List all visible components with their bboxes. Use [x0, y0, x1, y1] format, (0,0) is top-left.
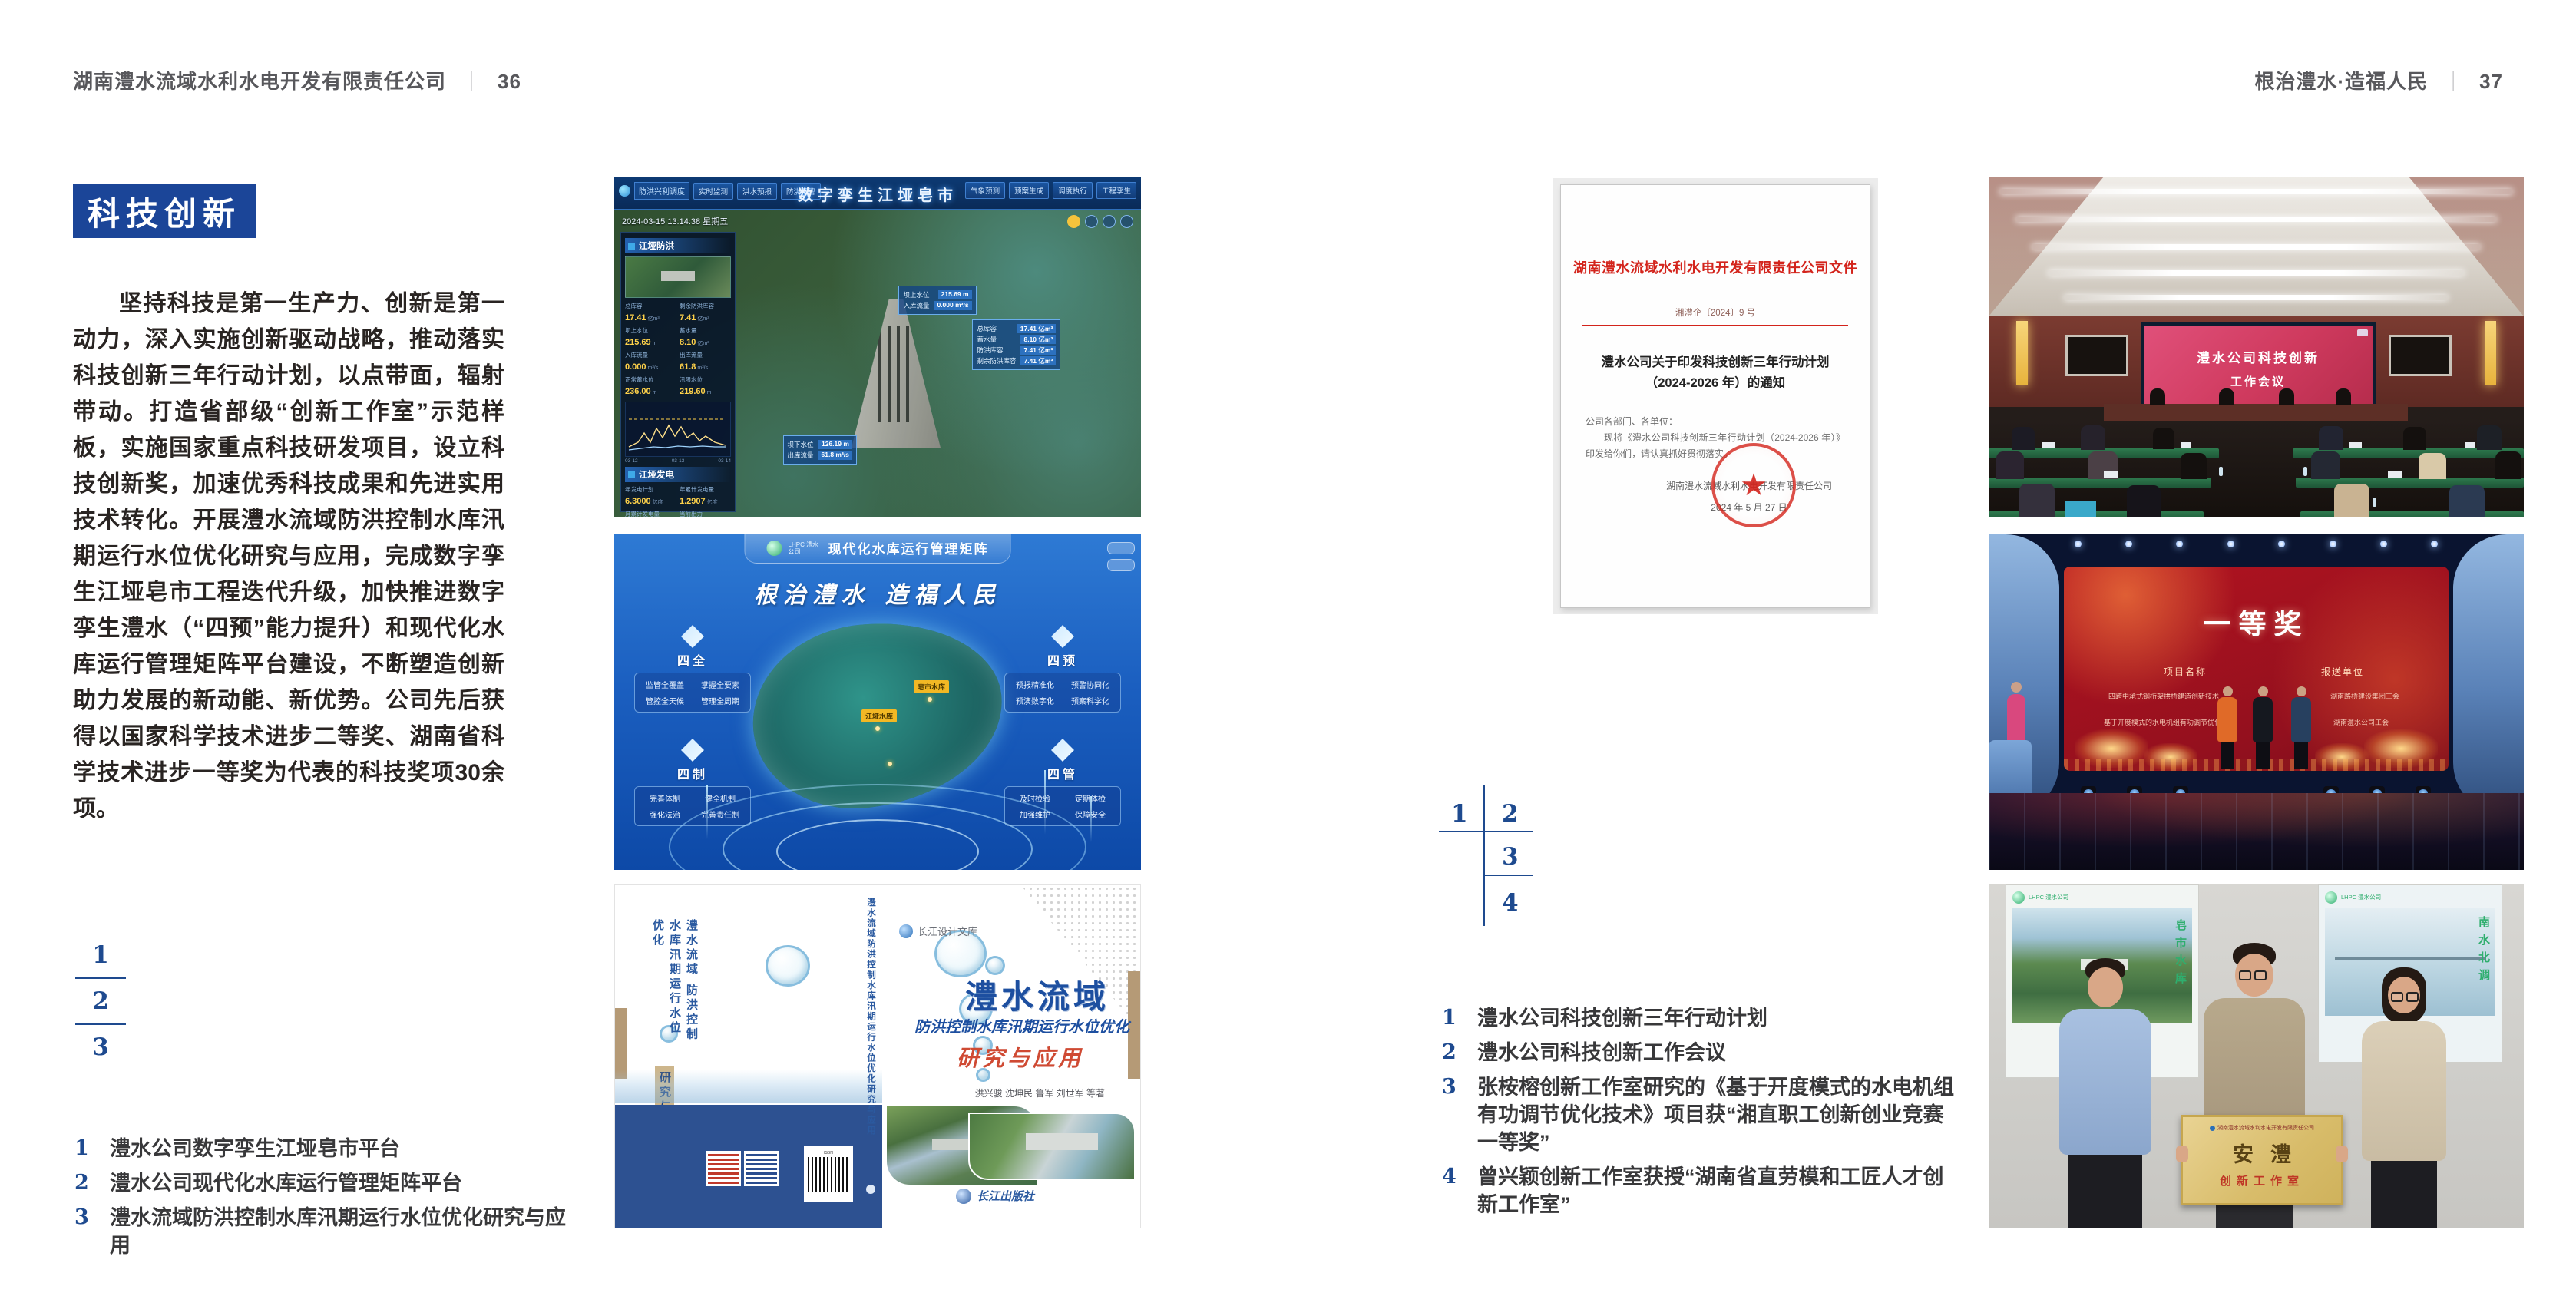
caption-text: 澧水公司现代化水库运行管理矩阵平台 [110, 1169, 581, 1197]
matrix-header: LHPC 澧水公司 现代化水库运行管理矩阵 [745, 534, 1011, 564]
figure-index-number: 3 [75, 1030, 126, 1064]
lhpc-logo-icon [2012, 891, 2025, 904]
figure-digital-twin-dashboard: 防洪兴利调度 实时监测 洪水预报 防洪预警 数字孪生江垭皂市 气象预测 预案生成… [614, 177, 1141, 517]
right-figure-index: 1 2 3 4 [1436, 783, 1543, 937]
caption-text: 张桉榕创新工作室研究的《基于开度模式的水电机组有功调节优化技术》项目获“湘直职工… [1477, 1073, 1964, 1156]
caption-number: 1 [1442, 1004, 1459, 1032]
figure-plaque-group-photo: LHPC 澧水公司 皂市水库 — · — LHPC 澧水公司 南水北调 [1989, 884, 2524, 1228]
side-screen [2065, 335, 2128, 376]
award-org: 湖南澧水公司工会 [2333, 717, 2389, 727]
caption-row: 4曾兴颖创新工作室获授“湖南省直劳模和工匠人才创新工作室” [1442, 1163, 1964, 1218]
speaker-silhouette [2219, 388, 2234, 405]
laptop [2181, 442, 2191, 448]
nav-tab: 调度执行 [1053, 182, 1093, 199]
caption-row: 3澧水流域防洪控制水库汛期运行水位优化研究与应用 [74, 1204, 581, 1259]
group-name: 四预 [1004, 650, 1121, 669]
stat: 总库容17.41亿m³ [625, 302, 676, 324]
book-cover: 澧水流域 防洪控制水库汛期运行水位优化 研究与应用 ISBN 澧水流域防洪控制水… [614, 884, 1141, 1228]
awardee-figure [2216, 686, 2239, 771]
front-cover: 长江设计文库 澧水流域 防洪控制水库汛期运行水位优化 研究与应用 洪兴骏 沈坤民… [882, 885, 1141, 1228]
stat: 汛限水位219.60m [680, 375, 731, 398]
wall-lamp [2485, 321, 2496, 385]
host-figure [2011, 682, 2022, 693]
award-title: 一等奖 [2064, 602, 2449, 642]
figure-index-number: 2 [1502, 800, 1519, 828]
dashboard-title: 数字孪生江垭皂市 [798, 183, 957, 205]
attendee-silhouette [2153, 428, 2174, 449]
stat: 月累计发电量3359.21万度 [625, 510, 676, 517]
document-number: 湘澧企〔2024〕9 号 [1561, 306, 1870, 319]
panel-title: 江垭防洪 [625, 238, 731, 253]
caption-row: 1澧水公司科技创新三年行动计划 [1442, 1004, 1964, 1032]
matrix-screenshot: LHPC 澧水公司 现代化水库运行管理矩阵 根治澧水 造福人民 皂市水库 江垭水… [614, 534, 1141, 870]
plaque-name: 安澧 [2183, 1138, 2341, 1168]
attendee-silhouette [2012, 427, 2035, 450]
left-figure-index: 1 2 3 [75, 938, 126, 1064]
section-badge: 科技创新 [73, 184, 256, 238]
caption-text: 澧水公司科技创新三年行动计划 [1477, 1004, 1964, 1032]
document-salutation: 公司各部门、各单位： [1586, 414, 1845, 430]
flood-stats-grid: 总库容17.41亿m³ 剩余防洪库容7.41亿m³ 坝上水位215.69m 蓄水… [625, 302, 731, 398]
rostrum [2104, 404, 2408, 422]
column-header: 报送单位 [2321, 665, 2364, 678]
attendee-silhouette [2081, 425, 2105, 450]
screen-title-line2: 工作会议 [2230, 373, 2286, 389]
panel-title: 江垭发电 [625, 467, 731, 482]
light-pillar [706, 785, 708, 839]
index-rule [75, 977, 126, 979]
attendee-silhouette [2181, 453, 2207, 479]
map-marker-icon [875, 726, 880, 731]
figure-book-cover: 澧水流域 防洪控制水库汛期运行水位优化 研究与应用 ISBN 澧水流域防洪控制水… [614, 884, 1141, 1228]
light-pillar [1090, 796, 1092, 842]
ceiling-light [1999, 189, 2513, 194]
water-bottle [2219, 467, 2223, 476]
left-running-head: 湖南澧水流域水利水电开发有限责任公司｜36 [73, 66, 521, 94]
caption-number: 3 [74, 1204, 91, 1259]
stat: 年累计发电量1.2907亿度 [680, 485, 731, 508]
layers-icon [1085, 215, 1098, 228]
app-logo-icon [619, 185, 630, 197]
group-icon [1051, 625, 1074, 648]
figure-index-number: 2 [75, 984, 126, 1018]
stage-floor [1989, 793, 2524, 870]
caption-text: 澧水公司科技创新工作会议 [1477, 1039, 1964, 1066]
stage-lights [2075, 541, 2439, 547]
map-label: 皂市水库 [914, 680, 949, 693]
weather-icon [1067, 215, 1080, 228]
seal-star-icon: ★ [1740, 470, 1767, 501]
group-name: 四全 [634, 650, 751, 669]
stat: 年发电计划6.3000亿度 [625, 485, 676, 508]
attendee-silhouette [2319, 426, 2343, 450]
caption-number: 1 [74, 1135, 91, 1162]
spine-logo-icon [866, 1185, 875, 1194]
group-name: 四管 [1004, 764, 1121, 782]
figure-index-number: 1 [1451, 800, 1468, 828]
stage-side-panel [2453, 534, 2524, 816]
book-title-tail: 研究与应用 [957, 1040, 1083, 1073]
award-org: 湖南路桥建设集团工会 [2330, 691, 2399, 701]
header-divider: ｜ [2443, 70, 2464, 93]
nav-tab: 洪水预报 [737, 183, 777, 200]
publisher-name: 长江出版社 [977, 1188, 1034, 1204]
index-rule [1439, 831, 1533, 832]
laptop [2465, 442, 2475, 448]
figure-index-number: 3 [1502, 843, 1519, 871]
laptop [2042, 442, 2055, 448]
dashboard-toolbar-icons [1067, 215, 1133, 228]
book-title-sub: 防洪控制水库汛期运行水位优化 [914, 1014, 1129, 1037]
attendee-silhouette [1996, 451, 2024, 479]
company-name: 湖南澧水流域水利水电开发有限责任公司 [73, 70, 446, 93]
page-number-right: 37 [2479, 70, 2503, 93]
stat: 坝上水位215.69m [625, 326, 676, 349]
dashboard-screenshot: 防洪兴利调度 实时监测 洪水预报 防洪预警 数字孪生江垭皂市 气象预测 预案生成… [614, 177, 1141, 517]
red-rule [1582, 325, 1848, 326]
caption-row: 1澧水公司数字孪生江垭皂市平台 [74, 1135, 581, 1162]
series-label: 长江设计文库 [899, 924, 977, 938]
figure-index-number: 4 [1502, 889, 1519, 917]
ceiling-light [2032, 244, 2482, 250]
nav-tab: 预案生成 [1009, 182, 1049, 199]
caption-row: 2澧水公司现代化水库运行管理矩阵平台 [74, 1169, 581, 1197]
stat: 当前出力0.00MW [680, 510, 731, 517]
plaque-org-line: 湖南澧水流域水利水电开发有限责任公司 [2183, 1124, 2341, 1132]
attendee-silhouette [2019, 484, 2055, 517]
series-logo-icon [899, 924, 913, 938]
award-project: 四跨中承式钢桁架拱桥建造创新技术 [2108, 691, 2219, 701]
group-icon [681, 739, 704, 762]
attendee-silhouette [2127, 485, 2161, 517]
left-captions: 1澧水公司数字孪生江垭皂市平台 2澧水公司现代化水库运行管理矩阵平台 3澧水流域… [74, 1135, 581, 1266]
caption-text: 曾兴颖创新工作室获授“湖南省直劳模和工匠人才创新工作室” [1477, 1163, 1964, 1218]
ceiling-light [2048, 270, 2465, 276]
map-label: 江垭水库 [861, 709, 897, 722]
matrix-title: 现代化水库运行管理矩阵 [828, 538, 989, 557]
attendee-silhouette [2495, 451, 2521, 479]
map-callout-storage: 总库容17.41 亿m³ 蓄水量8.10 亿m³ 防洪库容7.41 亿m³ 剩余… [972, 319, 1060, 370]
laptop [2104, 471, 2118, 478]
stat: 蓄水量8.10亿m³ [680, 326, 731, 349]
screen-title-line1: 澧水公司科技创新 [2197, 347, 2320, 366]
group-icon [1051, 739, 1074, 762]
meeting-room-photo: 澧水公司科技创新 工作会议 [1989, 177, 2524, 517]
group-name: 四制 [634, 764, 751, 782]
water-bottle [2303, 467, 2307, 476]
caption-number: 2 [74, 1169, 91, 1197]
hand [2176, 1146, 2188, 1162]
laptop [2388, 471, 2402, 478]
index-rule [75, 1023, 126, 1025]
caption-row: 3张桉榕创新工作室研究的《基于开度模式的水电机组有功调节优化技术》项目获“湘直职… [1442, 1073, 1964, 1156]
caption-text: 澧水公司数字孪生江垭皂市平台 [110, 1135, 581, 1162]
poster-vertical-text: 皂市水库 [2173, 919, 2189, 990]
ceiling-light [2015, 217, 2497, 222]
book-authors: 洪兴骏 沈坤民 鲁军 刘世军 等著 [975, 1086, 1105, 1099]
screen-logo-icon [2357, 329, 2368, 336]
awardee-figure [2290, 686, 2313, 771]
ceiling-light [2064, 295, 2449, 300]
matrix-group-siyu: 四预 预报精准化预警协同化 预演数字化预案科学化 [1004, 625, 1121, 713]
qr-code [744, 1151, 779, 1186]
dashboard-left-panel: 江垭防洪 总库容17.41亿m³ 剩余防洪库容7.41亿m³ 坝上水位215.6… [620, 232, 736, 512]
side-screen [2389, 335, 2452, 376]
figure-award-stage-photo: 一等奖 项目名称 报送单位 四跨中承式钢桁架拱桥建造创新技术 湖南路桥建设集团工… [1989, 534, 2524, 870]
document-paragraph: 现将《澧水公司科技创新三年行动计划（2024-2026 年）》印发给你们，请认真… [1586, 430, 1845, 462]
dashboard-right-nav: 气象预测 预案生成 调度执行 工程孪生 [965, 182, 1136, 199]
audience-area [1989, 421, 2524, 517]
hand [2336, 1146, 2348, 1162]
figure-index-number: 1 [75, 938, 126, 972]
dashboard-timestamp: 2024-03-15 13:14:38 星期五 [622, 215, 728, 227]
dam-thumbnail [625, 256, 731, 298]
caption-number: 2 [1442, 1039, 1459, 1066]
attendee-silhouette [2419, 453, 2446, 479]
innovation-studio-plaque: 湖南澧水流域水利水电开发有限责任公司 安澧 创新工作室 [2181, 1115, 2343, 1205]
speaker-silhouette [2150, 388, 2165, 405]
dashboard-left-nav: 防洪兴利调度 实时监测 洪水预报 防洪预警 [619, 182, 821, 200]
wall-lamp [2016, 321, 2028, 385]
attendee-silhouette [2449, 485, 2485, 517]
qr-code [706, 1151, 741, 1186]
attendee-silhouette [2311, 451, 2340, 479]
right-running-head: 根治澧水·造福人民｜37 [2254, 66, 2503, 94]
stat: 出库流量61.8m³/s [680, 351, 731, 373]
matrix-slogan: 根治澧水 造福人民 [754, 576, 1001, 610]
poster-vertical-text: 南水北调 [2476, 916, 2492, 987]
section-body-text: 坚持科技是第一生产力、创新是第一动力，深入实施创新驱动战略，推动落实科技创新三年… [73, 286, 504, 827]
caption-text: 澧水流域防洪控制水库汛期运行水位优化研究与应用 [110, 1204, 581, 1259]
attendee-silhouette [2477, 425, 2502, 450]
group-icon [681, 625, 704, 648]
motto: 根治澧水·造福人民 [2254, 70, 2428, 93]
stat: 入库流量0.000m³/s [625, 351, 676, 373]
nav-tab: 实时监测 [693, 183, 733, 200]
book-title-main: 澧水流域 [965, 971, 1109, 1018]
book-spine: 澧水流域防洪控制水库汛期运行水位优化研究与应用 [859, 885, 882, 1228]
document-red-header: 湖南澧水流域水利水电开发有限责任公司文件 [1561, 257, 1870, 277]
speaker-silhouette [2279, 388, 2294, 405]
dam-graphic [852, 299, 941, 448]
poster-logo-text: LHPC 澧水公司 [2341, 894, 2381, 901]
attendee-silhouette [2334, 484, 2369, 517]
group-photo: LHPC 澧水公司 皂市水库 — · — LHPC 澧水公司 南水北调 [1989, 884, 2524, 1228]
presenter-figure [2251, 686, 2274, 771]
plaque-subtitle: 创新工作室 [2183, 1172, 2341, 1189]
caption-number: 4 [1442, 1163, 1459, 1218]
page-number-left: 36 [498, 70, 521, 93]
right-captions: 1澧水公司科技创新三年行动计划 2澧水公司科技创新工作会议 3张桉榕创新工作室研… [1442, 1004, 1964, 1225]
index-rule [1483, 785, 1485, 926]
tissue-box [2065, 501, 2096, 517]
magazine-spread: 湖南澧水流域水利水电开发有限责任公司｜36 根治澧水·造福人民｜37 科技创新 … [0, 0, 2576, 1306]
document-body: 公司各部门、各单位： 现将《澧水公司科技创新三年行动计划（2024-2026 年… [1586, 414, 1845, 462]
water-bottle [2373, 498, 2376, 507]
map-marker-icon [928, 697, 932, 702]
poster-logo-text: LHPC 澧水公司 [2029, 894, 2068, 901]
water-wave-graphic [615, 1070, 882, 1103]
publisher-logo-icon [956, 1189, 971, 1204]
spine-title: 澧水流域防洪控制水库汛期运行水位优化研究与应用 [865, 898, 877, 1136]
stat: 剩余防洪库容7.41亿m³ [680, 302, 731, 324]
caption-row: 2澧水公司科技创新工作会议 [1442, 1039, 1964, 1066]
document-page: 湖南澧水流域水利水电开发有限责任公司文件 湘澧企〔2024〕9 号 澧水公司关于… [1560, 184, 1870, 608]
figure-meeting-photo: 澧水公司科技创新 工作会议 [1989, 177, 2524, 517]
fullscreen-icon [1120, 215, 1133, 228]
publisher-row: 长江出版社 [956, 1188, 1034, 1204]
lhpc-logo-icon [767, 541, 782, 556]
map-callout-upstream: 坝上水位215.69 m 入库流量0.000 m³/s [898, 286, 976, 315]
nav-tab: 工程孪生 [1096, 182, 1136, 199]
series-text: 长江设计文库 [918, 924, 977, 938]
figure-matrix-platform: LHPC 澧水公司 现代化水库运行管理矩阵 根治澧水 造福人民 皂市水库 江垭水… [614, 534, 1141, 870]
award-stage-photo: 一等奖 项目名称 报送单位 四跨中承式钢桁架拱桥建造创新技术 湖南路桥建设集团工… [1989, 534, 2524, 870]
header-button [1107, 542, 1135, 554]
water-level-chart [625, 402, 731, 457]
lhpc-logo-text: LHPC 澧水公司 [789, 541, 822, 555]
lhpc-logo-icon [2325, 891, 2337, 904]
barcode: ISBN [804, 1146, 853, 1202]
header-divider: ｜ [461, 70, 482, 93]
back-tan-tab [615, 1008, 627, 1079]
index-rule [1483, 875, 1533, 876]
figure-official-document: 湖南澧水流域水利水电开发有限责任公司文件 湘澧企〔2024〕9 号 澧水公司关于… [1553, 178, 1878, 614]
laptop [2349, 442, 2362, 448]
light-pillar [1044, 770, 1046, 835]
back-cover-title: 澧水流域 防洪控制水库汛期运行水位优化 [649, 919, 699, 1048]
header-button [1107, 559, 1135, 571]
red-seal: ★ [1711, 443, 1796, 527]
map-callout-downstream: 坝下水位126.19 m 出库流量61.8 m³/s [783, 435, 857, 465]
attendee-silhouette [2403, 427, 2426, 450]
podium [1989, 740, 2032, 800]
caption-number: 3 [1442, 1073, 1459, 1156]
column-header: 项目名称 [2164, 665, 2207, 678]
speaker-silhouette [2336, 388, 2351, 405]
module-label: 防洪兴利调度 [634, 182, 689, 200]
chart-x-labels: 03-1203-1303-14 [625, 458, 731, 464]
locate-icon [1103, 215, 1116, 228]
cover-photo-spillway [968, 1113, 1136, 1180]
map-marker-icon [888, 762, 892, 766]
bubble-graphic [766, 945, 810, 987]
matrix-group-siquan: 四全 监管全覆盖掌握全要素 管控全天候管理全周期 [634, 625, 751, 713]
nav-tab: 气象预测 [965, 182, 1005, 199]
document-title: 澧水公司关于印发科技创新三年行动计划 （2024-2026 年）的通知 [1561, 352, 1870, 394]
power-stats-grid: 年发电计划6.3000亿度 年累计发电量1.2907亿度 月累计发电量3359.… [625, 485, 731, 517]
stat: 正常蓄水位236.00m [625, 375, 676, 398]
